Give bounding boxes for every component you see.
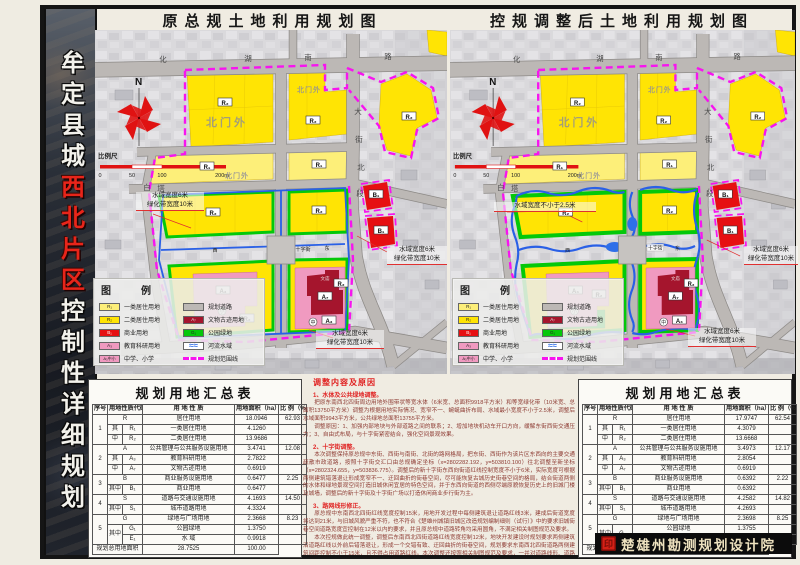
legend-swatch-a7: A₇ (183, 316, 204, 324)
table-header-cell: 用地性质代码 (108, 405, 143, 415)
table-cell: 3.4973 (725, 445, 769, 455)
svg-text:东: 东 (675, 245, 680, 252)
legend-item: A₃中小中学、小学 (458, 352, 534, 365)
table-cell: S₁ (123, 505, 143, 515)
table-cell: 二类居住用地 (143, 435, 235, 445)
table-cell: 道路与交通设施用地 (143, 495, 235, 505)
legend-item: 规划道路 (183, 300, 259, 313)
legend-item: 河流水域 (542, 339, 618, 352)
legend-item: A₇文物古迹用地 (542, 313, 618, 326)
svg-text:R₁: R₁ (316, 163, 323, 169)
legend-item: R₂二类居住用地 (99, 313, 175, 326)
table-cell: 其中 (108, 525, 123, 545)
legend-item: R₁一类居住用地 (99, 300, 175, 313)
svg-text:100: 100 (157, 173, 166, 179)
table-cell: 17.9747 (725, 415, 769, 425)
water-width-annotation: 水域宽度6米绿化带宽度10米 (387, 246, 447, 265)
table-cell: B (108, 475, 143, 485)
water-width-annotation: 水域宽度6米绿化带宽度10米 (316, 330, 384, 349)
table-cell: 二类居住用地 (633, 435, 725, 445)
table-cell: 0.6477 (235, 475, 279, 485)
table-cell: 一类居住用地 (143, 425, 235, 435)
table-cell: 2 (583, 445, 598, 475)
table-cell: 4.3079 (725, 425, 769, 435)
legend-item-label: 商业用地 (124, 328, 148, 337)
svg-text:R₂: R₂ (754, 115, 761, 121)
table-cell: 其中 (108, 485, 123, 495)
table-cell: 其中 (598, 485, 613, 495)
legend-item-label: 河流水域 (208, 341, 232, 350)
legend-item-label: 二类居住用地 (483, 315, 519, 324)
svg-text:中: 中 (310, 319, 315, 326)
table-cell: S (598, 495, 633, 505)
cross-street-plaza (267, 236, 295, 264)
table-cell: 8.25 (769, 515, 797, 525)
table-header-cell: 比 例（%） (769, 405, 797, 415)
table-cell: 0.6919 (725, 465, 769, 475)
table-cell (769, 425, 797, 435)
legend-item: A₃教育科研用地 (458, 339, 534, 352)
pond (627, 217, 637, 231)
svg-text:北: 北 (707, 163, 715, 172)
table-cell: G (598, 515, 633, 525)
svg-text:R₂: R₂ (222, 101, 229, 107)
institute-name: 楚雄州勘测规划设计院 (621, 534, 776, 554)
table-header-cell: 序号 (93, 405, 108, 415)
svg-text:0: 0 (98, 173, 101, 179)
legend-title: 图 例 (460, 282, 618, 297)
svg-text:B₁: B₁ (373, 193, 380, 199)
table-cell: 4 (93, 495, 108, 515)
svg-text:R₂: R₂ (406, 115, 413, 121)
table-cell: 2.3698 (725, 515, 769, 525)
planning-sheet: 牟定县城西北片区控制性详细规划 原总规土地利用规划图 控规调整后土地利用规划图 (0, 0, 800, 565)
legend-swatch-a3s: A₃中小 (458, 355, 479, 363)
table-cell: 2.8054 (725, 455, 769, 465)
svg-text:西: 西 (565, 248, 570, 254)
table-cell: 教育科研用地 (143, 455, 235, 465)
table-cell: A₃ (123, 455, 143, 465)
table-cell: 居住用地 (143, 415, 235, 425)
table-cell: 2.22 (769, 475, 797, 485)
table-cell: G (108, 515, 143, 525)
table-cell: R₂ (613, 435, 633, 445)
svg-text:B₁: B₁ (378, 229, 385, 235)
legend-swatch-r1: R₁ (99, 303, 120, 311)
legend-item-label: 中学、小学 (483, 354, 513, 363)
table-cell (769, 455, 797, 465)
table-cell: 商业服务设施用地 (143, 475, 235, 485)
legend-title: 图 例 (101, 282, 259, 297)
table-cell: 其中 (108, 505, 123, 515)
svg-text:R₂: R₂ (660, 119, 667, 125)
table-cell: 其 (598, 455, 613, 465)
table-cell: 商业用地 (633, 485, 725, 495)
table-cell: 3 (583, 475, 598, 495)
legend-swatch-road (542, 303, 563, 311)
school-symbol: 中 (309, 318, 317, 326)
table-cell: 18.0946 (235, 415, 279, 425)
notes-paragraph: 本次调整保持原总规中东街、西街与南街、北街的路网格局，把东街、西街作为该片区东西… (303, 452, 575, 500)
notes-section-heading: 3、路网线形修正。 (313, 501, 575, 510)
svg-text:北门外: 北门外 (577, 171, 601, 180)
svg-text:文庙: 文庙 (671, 275, 680, 282)
table-cell: 绿地与广场用地 (633, 515, 725, 525)
svg-text:R₂: R₂ (666, 209, 673, 215)
svg-text:街: 街 (355, 134, 363, 144)
table-header-cell: 用地面积（ha） (235, 405, 279, 415)
svg-text:化: 化 (159, 54, 167, 64)
legend-item-label: 教育科研用地 (124, 341, 160, 350)
svg-text:R₁: R₁ (556, 165, 563, 171)
table-cell: 100.00 (235, 545, 279, 555)
notes-sections: 1、水体及公共绿地调整。把原东南西北四街周边用地外围带状等宽水体（6米宽、总面积… (303, 390, 575, 555)
legend-column-1: R₁一类居住用地R₂二类居住用地B₁商业用地A₃教育科研用地A₃中小中学、小学 (99, 300, 175, 365)
svg-text:段: 段 (356, 188, 364, 198)
svg-text:湖: 湖 (244, 54, 252, 63)
table-cell: 0.6392 (725, 485, 769, 495)
svg-text:N: N (135, 77, 142, 88)
table-cell: A (598, 445, 633, 455)
svg-text:路: 路 (734, 51, 742, 61)
svg-text:R₁: R₁ (204, 165, 211, 171)
svg-text:段: 段 (706, 188, 714, 198)
svg-text:北门外: 北门外 (559, 115, 600, 129)
legend-swatch-r2: R₂ (99, 316, 120, 324)
legend-item: G₁公园绿地 (542, 326, 618, 339)
institute-bar: 印 楚雄州勘测规划设计院 (595, 533, 792, 554)
svg-text:R₂: R₂ (338, 282, 345, 288)
table-cell: 14.82 (769, 495, 797, 505)
table-cell: 12.17 (769, 445, 797, 455)
table-cell: 5 (93, 515, 108, 545)
table-header-cell: 用地面积（ha） (725, 405, 769, 415)
table-cell: 其 (108, 455, 123, 465)
svg-text:化: 化 (513, 54, 521, 64)
legend-swatch-b1: B₁ (458, 329, 479, 337)
table-cell: 4.3324 (235, 505, 279, 515)
legend-item: R₁一类居住用地 (458, 300, 534, 313)
table-cell: 0.9918 (235, 535, 279, 545)
svg-text:R₂: R₂ (688, 282, 695, 288)
notes-paragraph: 原总规中东南西北四街红线宽度控制15米，用地开发过程中每侧建筑退让道路红线3米，… (303, 511, 575, 535)
table-cell: A (108, 445, 143, 455)
legend-item-label: 河流水域 (567, 341, 591, 350)
table-cell: 中 (108, 435, 123, 445)
svg-text:B₁: B₁ (722, 193, 729, 199)
table-cell: 文物古迹用地 (143, 465, 235, 475)
table-cell: A₇ (123, 465, 143, 475)
legend-item-label: 规划道路 (208, 302, 232, 311)
legend-swatch-river (183, 342, 204, 350)
table-cell: 一类居住用地 (633, 425, 725, 435)
table-cell: 绿地与广场用地 (143, 515, 235, 525)
svg-text:0: 0 (453, 173, 456, 179)
table-cell: S (108, 495, 143, 505)
table-header-cell: 用 地 性 质 (633, 405, 725, 415)
svg-text:A₇: A₇ (322, 295, 329, 301)
svg-text:大: 大 (354, 106, 362, 116)
table-cell: 1 (583, 415, 598, 445)
svg-text:大: 大 (704, 106, 712, 116)
svg-text:A₇: A₇ (672, 295, 679, 301)
table-cell: 教育科研用地 (633, 455, 725, 465)
legend-item-label: 文物古迹用地 (567, 315, 603, 324)
legend-item: 规划范围线 (542, 352, 618, 365)
table-cell: A₃ (613, 455, 633, 465)
legend-swatch-bound (183, 357, 204, 360)
table-title: 规划用地汇总表 (582, 383, 788, 402)
sheet-vertical-title: 牟定县城西北片区控制性详细规划 (59, 50, 83, 515)
table-cell: 商业用地 (143, 485, 235, 495)
svg-text:北门外: 北门外 (297, 85, 321, 94)
legend-swatch-g1: G₁ (183, 329, 204, 337)
legend-item-label: 规划范围线 (208, 354, 238, 363)
table-cell: 居住用地 (633, 415, 725, 425)
land-use-table-right: 规划用地汇总表 序号用地性质代码用 地 性 质用地面积（ha）比 例（%）1R居… (578, 379, 792, 558)
legend-item: A₃中小中学、小学 (99, 352, 175, 365)
svg-text:东: 东 (324, 245, 329, 252)
table-cell: 规划总用地面积 (93, 545, 143, 555)
table-header-cell: 用地性质代码 (598, 405, 633, 415)
legend-item-label: 规划道路 (567, 302, 591, 311)
svg-text:R₂: R₂ (310, 119, 317, 125)
legend-swatch-r2: R₂ (458, 316, 479, 324)
table-cell: B (598, 475, 633, 485)
table-cell: R₁ (123, 425, 143, 435)
svg-text:比例尺: 比例尺 (453, 151, 473, 160)
table-cell: 公共管理与公共服务设施用地 (633, 445, 725, 455)
notes-section-heading: 2、十字街调整。 (313, 442, 575, 451)
legend-item: 规划道路 (542, 300, 618, 313)
legend-item-label: 中学、小学 (124, 354, 154, 363)
table-cell: 其中 (598, 505, 613, 515)
table-cell: R (598, 415, 633, 425)
legend-column-2: 规划道路A₇文物古迹用地G₁公园绿地河流水域规划范围线 (183, 300, 259, 365)
svg-text:北门外: 北门外 (225, 171, 249, 180)
table-cell: 城市道路用地 (143, 505, 235, 515)
svg-text:北: 北 (357, 163, 365, 172)
table-cell (769, 465, 797, 475)
svg-text:R₂: R₂ (574, 101, 581, 107)
legend-item-label: 公园绿地 (208, 328, 232, 337)
table-cell: 13.6668 (725, 435, 769, 445)
table-cell: 其 (598, 425, 613, 435)
legend-swatch-r1: R₁ (458, 303, 479, 311)
adjustment-notes: 调整内容及原因 1、水体及公共绿地调整。把原东南西北四街周边用地外围带状等宽水体… (303, 377, 575, 555)
institute-seal-icon: 印 (601, 536, 616, 551)
notes-paragraph: 本次控规做此统一调整，调整后东南西北四街道路红线宽度控制12米，地块开发建设时规… (303, 535, 575, 555)
legend-item: B₁商业用地 (99, 326, 175, 339)
legend-item-label: 规划范围线 (567, 354, 597, 363)
legend-item: 规划范围线 (183, 352, 259, 365)
svg-text:A₃: A₃ (325, 319, 332, 325)
svg-text:N: N (489, 77, 496, 88)
table-cell: 62.54 (769, 415, 797, 425)
table-cell: A₇ (613, 465, 633, 475)
legend-left: 图 例 R₁一类居住用地R₂二类居住用地B₁商业用地A₃教育科研用地A₃中小中学… (93, 278, 265, 366)
svg-text:路: 路 (384, 51, 392, 61)
table-cell: 公园绿地 (143, 525, 235, 535)
table-cell: 道路与交通设施用地 (633, 495, 725, 505)
svg-text:湖: 湖 (596, 54, 603, 63)
svg-text:白: 白 (497, 182, 504, 192)
legend-swatch-road (183, 303, 204, 311)
legend-swatch-a3: A₃ (458, 342, 479, 350)
legend-column-1: R₁一类居住用地R₂二类居住用地B₁商业用地A₃教育科研用地A₃中小中学、小学 (458, 300, 534, 365)
table-cell: 4.2582 (725, 495, 769, 505)
table-body: 序号用地性质代码用 地 性 质用地面积（ha）比 例（%）1R居住用地18.09… (92, 404, 298, 555)
legend-swatch-bound (542, 357, 563, 360)
table-cell: 28.7525 (143, 545, 235, 555)
table-cell: 4.1693 (235, 495, 279, 505)
legend-swatch-a3s: A₃中小 (99, 355, 120, 363)
legend-item-label: 文物古迹用地 (208, 315, 244, 324)
legend-item-label: 一类居住用地 (124, 302, 160, 311)
water-width-annotation: 水域宽度6米绿化带宽度10米 (136, 192, 204, 211)
legend-swatch-a7: A₇ (542, 316, 563, 324)
legend-item: B₁商业用地 (458, 326, 534, 339)
table-cell (769, 435, 797, 445)
table-cell: E₁ (123, 535, 143, 545)
table-cell: R₁ (613, 425, 633, 435)
table-cell: 水 域 (143, 535, 235, 545)
table-cell: 文物古迹用地 (633, 465, 725, 475)
table-cell: 中 (598, 435, 613, 445)
notes-section-heading: 1、水体及公共绿地调整。 (313, 390, 575, 399)
svg-text:R₁: R₁ (666, 163, 673, 169)
table-cell: 0.6392 (725, 475, 769, 485)
legend-column-2: 规划道路A₇文物古迹用地G₁公园绿地河流水域规划范围线 (542, 300, 618, 365)
svg-text:十字街: 十字街 (648, 244, 663, 251)
land-use-table-left: 规划用地汇总表 序号用地性质代码用 地 性 质用地面积（ha）比 例（%）1R居… (88, 379, 302, 558)
svg-text:文庙: 文庙 (321, 275, 330, 282)
table-cell: 1 (93, 415, 108, 445)
legend-item-label: 二类居住用地 (124, 315, 160, 324)
svg-text:北门外: 北门外 (206, 115, 248, 129)
svg-text:100: 100 (511, 173, 520, 179)
table-cell: 3.4741 (235, 445, 279, 455)
school-symbol: 中 (660, 318, 668, 326)
svg-text:R₂: R₂ (210, 211, 217, 217)
table-cell: S₁ (613, 505, 633, 515)
table-cell: B₁ (123, 485, 143, 495)
table-cell: 2.3668 (235, 515, 279, 525)
table-cell: 0.6919 (235, 465, 279, 475)
table-title: 规划用地汇总表 (92, 383, 298, 402)
legend-swatch-g1: G₁ (542, 329, 563, 337)
water-min-width-annotation: 水域宽度不小于2.5米 (494, 202, 596, 212)
notes-title: 调整内容及原因 (313, 377, 575, 388)
svg-text:北门外: 北门外 (648, 85, 672, 94)
table-cell: 城市道路用地 (633, 505, 725, 515)
legend-right: 图 例 R₁一类居住用地R₂二类居住用地B₁商业用地A₃教育科研用地A₃中小中学… (452, 278, 624, 366)
svg-text:比例尺: 比例尺 (98, 151, 118, 160)
table-cell: G₁ (123, 525, 143, 535)
svg-text:R₂: R₂ (316, 209, 323, 215)
svg-text:A₃: A₃ (676, 319, 683, 325)
svg-text:塔: 塔 (511, 183, 519, 193)
legend-swatch-a3: A₃ (99, 342, 120, 350)
legend-item-label: 一类居住用地 (483, 302, 519, 311)
table-header-cell: 序号 (583, 405, 598, 415)
legend-item-label: 教育科研用地 (483, 341, 519, 350)
table-cell: 4 (583, 495, 598, 515)
table-cell: 2.7822 (235, 455, 279, 465)
table-cell: 商业服务设施用地 (633, 475, 725, 485)
svg-text:南: 南 (655, 52, 662, 62)
legend-swatch-b1: B₁ (99, 329, 120, 337)
title-part-2: 西北片区 (57, 174, 86, 298)
legend-swatch-river (542, 342, 563, 350)
table-cell: 4.2693 (725, 505, 769, 515)
table-cell: 其 (108, 425, 123, 435)
legend-item: R₂二类居住用地 (458, 313, 534, 326)
notes-paragraph: 调整原因：1、加强内部地块与外部道路之间的联系；2、增加地块机动车开口方向，缓解… (303, 424, 575, 440)
table-cell (769, 505, 797, 515)
table-cell: 2 (93, 445, 108, 475)
legend-item: A₃教育科研用地 (99, 339, 175, 352)
svg-text:十字街: 十字街 (295, 246, 310, 253)
svg-text:中: 中 (661, 319, 666, 326)
svg-text:白: 白 (143, 182, 151, 192)
title-part-3: 控制性详细规划 (57, 298, 86, 515)
table-cell: 公共管理与公共服务设施用地 (143, 445, 235, 455)
svg-text:50: 50 (129, 173, 135, 179)
legend-item: G₁公园绿地 (183, 326, 259, 339)
svg-text:B₁: B₁ (727, 229, 734, 235)
cross-street-plaza (619, 236, 646, 264)
legend-item-label: 商业用地 (483, 328, 507, 337)
svg-text:南: 南 (304, 52, 312, 62)
legend-item: 河流水域 (183, 339, 259, 352)
table-cell (769, 485, 797, 495)
table-cell: B₁ (613, 485, 633, 495)
legend-item-label: 公园绿地 (567, 328, 591, 337)
svg-text:街: 街 (705, 134, 713, 144)
table-cell: 中 (598, 465, 613, 475)
table-header-cell: 用 地 性 质 (143, 405, 235, 415)
water-width-annotation: 水域宽度6米绿化带宽度10米 (688, 328, 756, 347)
right-map-title: 控规调整后土地利用规划图 (452, 10, 792, 30)
table-cell: 4.1260 (235, 425, 279, 435)
table-cell: 13.9686 (235, 435, 279, 445)
svg-text:西: 西 (212, 248, 217, 254)
table-cell: 中 (108, 465, 123, 475)
table-cell: 0.6477 (235, 485, 279, 495)
table-cell: R (108, 415, 143, 425)
svg-text:50: 50 (483, 173, 489, 179)
legend-item: A₇文物古迹用地 (183, 313, 259, 326)
left-map-title: 原总规土地利用规划图 (100, 10, 445, 30)
table-cell: 1.3750 (235, 525, 279, 535)
table-cell: 3 (93, 475, 108, 495)
water-width-annotation: 水域宽度6米绿化带宽度10米 (744, 246, 798, 265)
table-cell: R₂ (123, 435, 143, 445)
title-part-1: 牟定县城 (57, 50, 86, 174)
notes-paragraph: 把原东南西北四街周边用地外围带状等宽水体（6米宽、总面积9918平方米）和等宽绿… (303, 400, 575, 424)
